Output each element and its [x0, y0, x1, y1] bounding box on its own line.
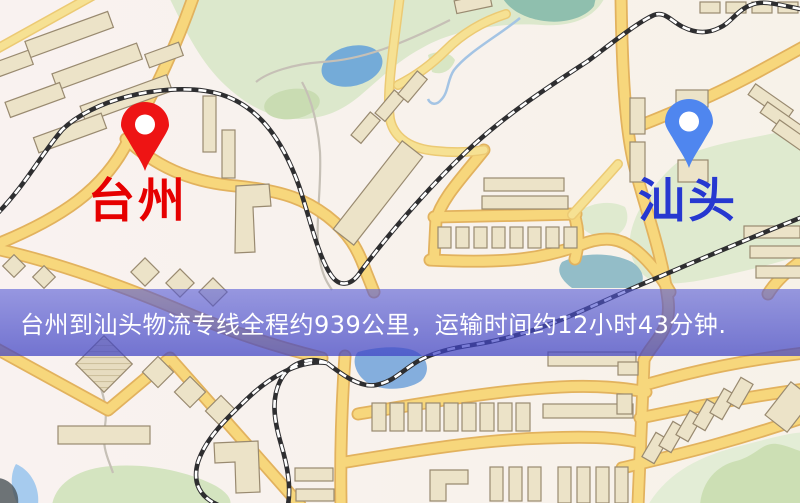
map-graphics: [0, 0, 800, 503]
route-info-text: 台州到汕头物流专线全程约939公里，运输时间约12小时43分钟.: [0, 305, 727, 340]
map-canvas: 台州 汕头 台州到汕头物流专线全程约939公里，运输时间约12小时43分钟.: [0, 0, 800, 503]
origin-city-label: 台州: [88, 178, 188, 225]
pin-hole: [679, 112, 699, 132]
route-info-banner: 台州到汕头物流专线全程约939公里，运输时间约12小时43分钟.: [0, 289, 800, 356]
pin-hole: [135, 115, 155, 135]
destination-city-label: 汕头: [638, 178, 738, 225]
